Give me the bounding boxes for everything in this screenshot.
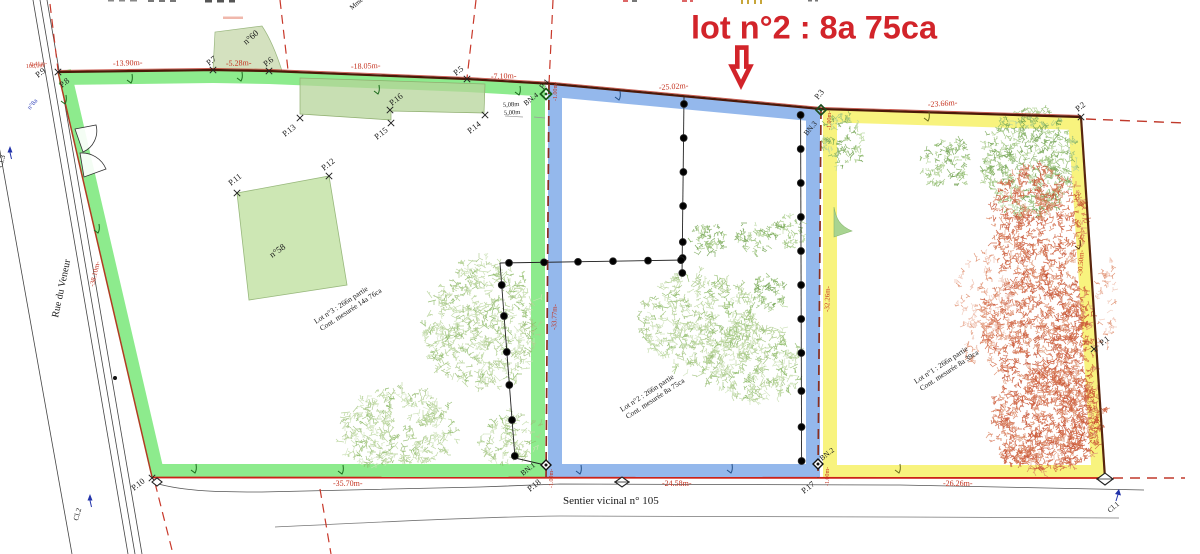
svg-text:5,00m: 5,00m — [504, 109, 521, 117]
svg-text:P.2: P.2 — [1073, 99, 1087, 113]
svg-text:-25.02m-: -25.02m- — [659, 81, 689, 92]
svg-text:-1.00m-: -1.00m- — [553, 82, 559, 101]
svg-text:-18.05m-: -18.05m- — [351, 61, 381, 71]
svg-text:Rue du Veneur: Rue du Veneur — [50, 258, 73, 319]
svg-text:-13.90m-: -13.90m- — [113, 58, 143, 68]
svg-text:-38.10m-: -38.10m- — [88, 260, 102, 288]
svg-text:P.12: P.12 — [319, 156, 337, 173]
svg-text:Sentier vicinal n° 105: Sentier vicinal n° 105 — [563, 495, 659, 507]
svg-text:Cl.1: Cl.1 — [1106, 499, 1122, 514]
svg-text:P.5: P.5 — [451, 63, 465, 77]
svg-text:-32.26m-: -32.26m- — [823, 285, 832, 312]
svg-text:Mme: Mme — [348, 0, 364, 12]
svg-text:P.10: P.10 — [129, 476, 147, 493]
svg-text:-26.26m-: -26.26m- — [943, 479, 973, 488]
svg-text:Cl.3: Cl.3 — [0, 154, 7, 169]
svg-text:P.14: P.14 — [465, 118, 483, 135]
svg-text:P.13: P.13 — [280, 122, 298, 139]
svg-text:Cl.2: Cl.2 — [71, 507, 83, 522]
svg-text:-5.28m-: -5.28m- — [226, 58, 252, 68]
svg-text:5,08m: 5,08m — [503, 101, 520, 109]
svg-text:P.1: P.1 — [1097, 333, 1111, 347]
svg-text:-24.58m-: -24.58m- — [662, 479, 692, 488]
svg-text:P.18: P.18 — [525, 477, 543, 494]
svg-text:P.11: P.11 — [226, 171, 243, 188]
svg-text:P.17: P.17 — [799, 479, 817, 496]
svg-text:-33.77m-: -33.77m- — [550, 303, 559, 330]
svg-text:P.15: P.15 — [372, 125, 390, 142]
svg-text:-1.50m-: -1.50m- — [1093, 411, 1101, 432]
svg-text:lot n°2 : 8a 75ca: lot n°2 : 8a 75ca — [691, 10, 938, 46]
svg-text:P.3: P.3 — [812, 87, 826, 101]
svg-text:-1.00m-: -1.00m- — [549, 469, 555, 488]
svg-text:-7.10m-: -7.10m- — [491, 71, 517, 81]
svg-text:-1.00m-: -1.00m- — [827, 111, 833, 130]
svg-text:-35.70m-: -35.70m- — [333, 479, 363, 488]
svg-text:-1.00m-: -1.00m- — [825, 467, 831, 486]
svg-text:-23.66m-: -23.66m- — [928, 98, 958, 109]
svg-text:n°8a: n°8a — [26, 98, 39, 112]
